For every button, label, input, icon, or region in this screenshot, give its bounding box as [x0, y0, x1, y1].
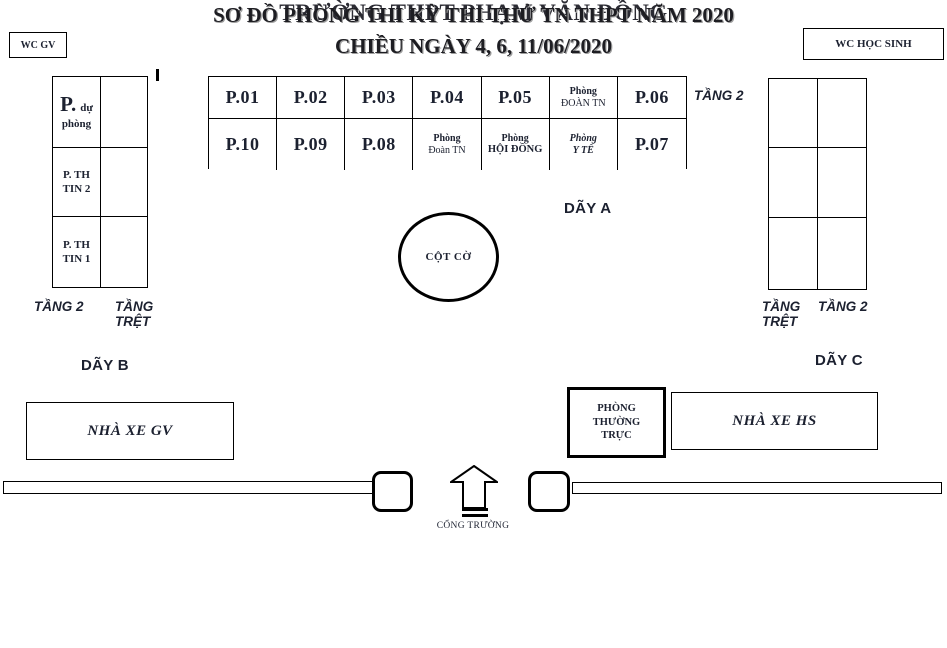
floor-label-b-left: TẦNG 2 — [34, 299, 84, 314]
office-y-te: Phòng Y TẾ — [550, 119, 618, 170]
office-doan-tn-bottom: Phòng Đoàn TN — [413, 119, 481, 170]
parking-gv-label: NHÀ XE GV — [87, 423, 172, 440]
room-tin1-line1: P. TH — [63, 238, 90, 252]
gate-threshold-icon — [462, 508, 488, 517]
room-p08: P.08 — [345, 119, 413, 170]
empty-cell — [769, 148, 818, 218]
room-tin1-line2: TIN 1 — [63, 252, 91, 266]
office-hoi-dong: Phòng HỘI ĐỒNG — [482, 119, 550, 170]
empty-cell — [769, 218, 818, 289]
room-tin2-line1: P. TH — [63, 168, 90, 182]
flagpole-label: CỘT CỜ — [426, 251, 472, 263]
empty-cell — [818, 148, 866, 218]
map-caption: SƠ ĐỒ PHÒNG THI KỲ THI THỬ TN THPT NĂM 2… — [0, 0, 947, 62]
room-cell-du-phong: P.dự phòng — [53, 77, 101, 148]
room-p10: P.10 — [209, 119, 277, 170]
caption-line1: SƠ ĐỒ PHÒNG THI KỲ THI THỬ TN THPT NĂM 2… — [0, 0, 947, 31]
room-p06: P.06 — [618, 77, 686, 119]
room-p01: P.01 — [209, 77, 277, 119]
fence-wall-left — [3, 481, 373, 494]
floor-label-day-a: TẦNG 2 — [694, 88, 744, 103]
gate-pillar-left — [372, 471, 413, 512]
room-p03: P.03 — [345, 77, 413, 119]
caption-line2: CHIỀU NGÀY 4, 6, 11/06/2020 — [0, 31, 947, 62]
room-tin2-line2: TIN 2 — [63, 182, 91, 196]
room-p05: P.05 — [482, 77, 550, 119]
empty-cell — [101, 77, 147, 148]
exam-room-table: P.01 P.02 P.03 P.04 P.05 Phòng ĐOÀN TN P… — [208, 76, 687, 169]
room-cell-tin2: P. TH TIN 2 — [53, 148, 101, 217]
room-p04: P.04 — [413, 77, 481, 119]
office-doan-tn-top: Phòng ĐOÀN TN — [550, 77, 618, 119]
room-du-phong-big: P. — [60, 92, 76, 116]
flagpole-circle: CỘT CỜ — [398, 212, 499, 302]
day-a-label: DÃY A — [564, 200, 611, 217]
empty-cell — [769, 79, 818, 148]
room-du-phong-line2: phòng — [62, 117, 91, 131]
parking-hs-label: NHÀ XE HS — [732, 413, 817, 430]
tick-mark — [156, 69, 159, 81]
building-b-grid: P.dự phòng P. TH TIN 2 P. TH TIN 1 — [52, 76, 148, 288]
gate-label: CỔNG TRƯỜNG — [418, 521, 528, 531]
floor-label-c-left: TẦNG TRỆT — [762, 299, 800, 329]
school-map: TRƯỜNG THPT PHẠM VĂN ĐỒNG WC GV WC HỌC S… — [0, 0, 947, 648]
day-c-label: DÃY C — [815, 352, 863, 369]
parking-hs-box: NHÀ XE HS — [671, 392, 878, 450]
floor-label-c-right: TẦNG 2 — [818, 299, 868, 314]
fence-wall-right — [572, 482, 942, 494]
room-du-phong-small: dự — [80, 102, 93, 114]
room-p09: P.09 — [277, 119, 345, 170]
empty-cell — [818, 218, 866, 289]
gate-arrow-icon — [450, 465, 498, 509]
room-du-phong-line1: P.dự — [60, 92, 93, 117]
parking-gv-box: NHÀ XE GV — [26, 402, 234, 460]
gate-pillar-right — [528, 471, 570, 512]
room-cell-tin1: P. TH TIN 1 — [53, 217, 101, 287]
day-b-label: DÃY B — [81, 357, 129, 374]
room-p02: P.02 — [277, 77, 345, 119]
room-p07: P.07 — [618, 119, 686, 170]
guard-room-box: PHÒNG THƯỜNG TRỰC — [567, 387, 666, 458]
guard-room-label: PHÒNG THƯỜNG TRỰC — [593, 402, 640, 443]
building-c-grid — [768, 78, 867, 290]
empty-cell — [101, 148, 147, 217]
empty-cell — [101, 217, 147, 287]
empty-cell — [818, 79, 866, 148]
floor-label-b-right: TẦNG TRỆT — [115, 299, 153, 329]
